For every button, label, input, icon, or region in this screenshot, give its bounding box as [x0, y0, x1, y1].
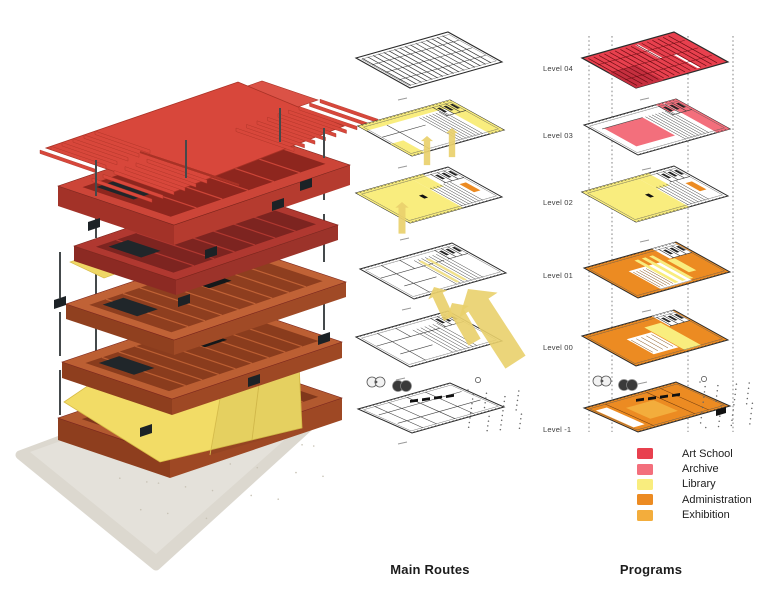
level-label-0: Level 04	[543, 64, 585, 73]
level-label-5: Level -1	[543, 425, 585, 434]
level-label-1: Level 03	[543, 131, 585, 140]
legend-swatch-exhibition	[637, 510, 653, 521]
legend-row-library: Library	[637, 477, 752, 492]
legend-label: Library	[682, 478, 716, 490]
programs-diagram	[582, 32, 753, 432]
legend-row-art-school: Art School	[637, 446, 752, 461]
legend-swatch-administration	[637, 494, 653, 505]
program-legend: Art SchoolArchiveLibraryAdministrationEx…	[637, 446, 752, 523]
legend-row-exhibition: Exhibition	[637, 508, 752, 523]
programs-title: Programs	[596, 562, 706, 577]
main-routes-title: Main Routes	[375, 562, 485, 577]
level-label-3: Level 01	[543, 271, 585, 280]
level-label-2: Level 02	[543, 198, 585, 207]
main-routes-diagram	[356, 32, 535, 444]
legend-swatch-art-school	[637, 448, 653, 459]
legend-label: Archive	[682, 463, 719, 475]
level-label-4: Level 00	[543, 343, 585, 352]
legend-label: Administration	[682, 494, 752, 506]
legend-swatch-library	[637, 479, 653, 490]
legend-row-administration: Administration	[637, 492, 752, 507]
legend-label: Art School	[682, 448, 733, 460]
legend-row-archive: Archive	[637, 461, 752, 476]
legend-label: Exhibition	[682, 509, 730, 521]
legend-swatch-archive	[637, 464, 653, 475]
exploded-model-photo	[20, 81, 378, 566]
presentation-board: Main Routes Programs Level 04Level 03Lev…	[0, 0, 768, 600]
